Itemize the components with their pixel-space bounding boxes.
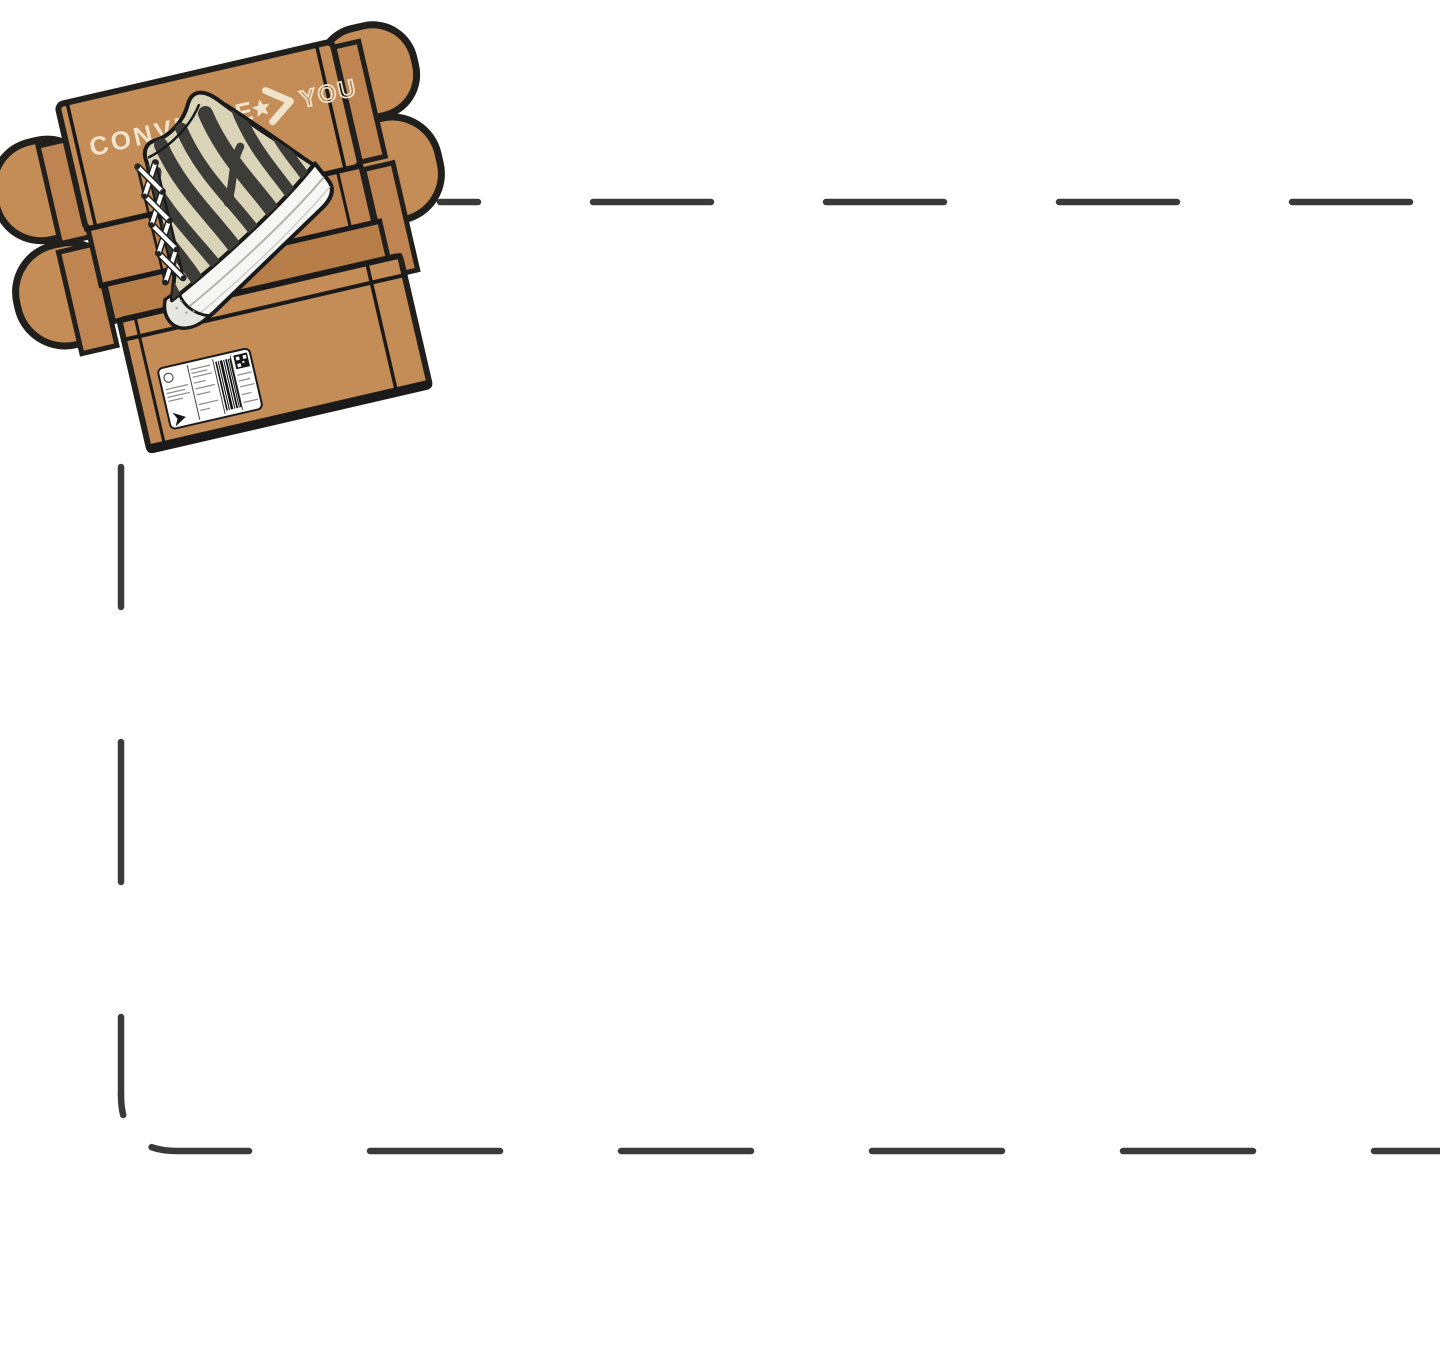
canvas: CONVERSE YOU bbox=[0, 0, 1440, 1348]
converse-box-illustration: CONVERSE YOU bbox=[0, 0, 480, 470]
box-group: CONVERSE YOU bbox=[0, 16, 480, 470]
dashed-frame-corner bbox=[121, 1095, 249, 1151]
